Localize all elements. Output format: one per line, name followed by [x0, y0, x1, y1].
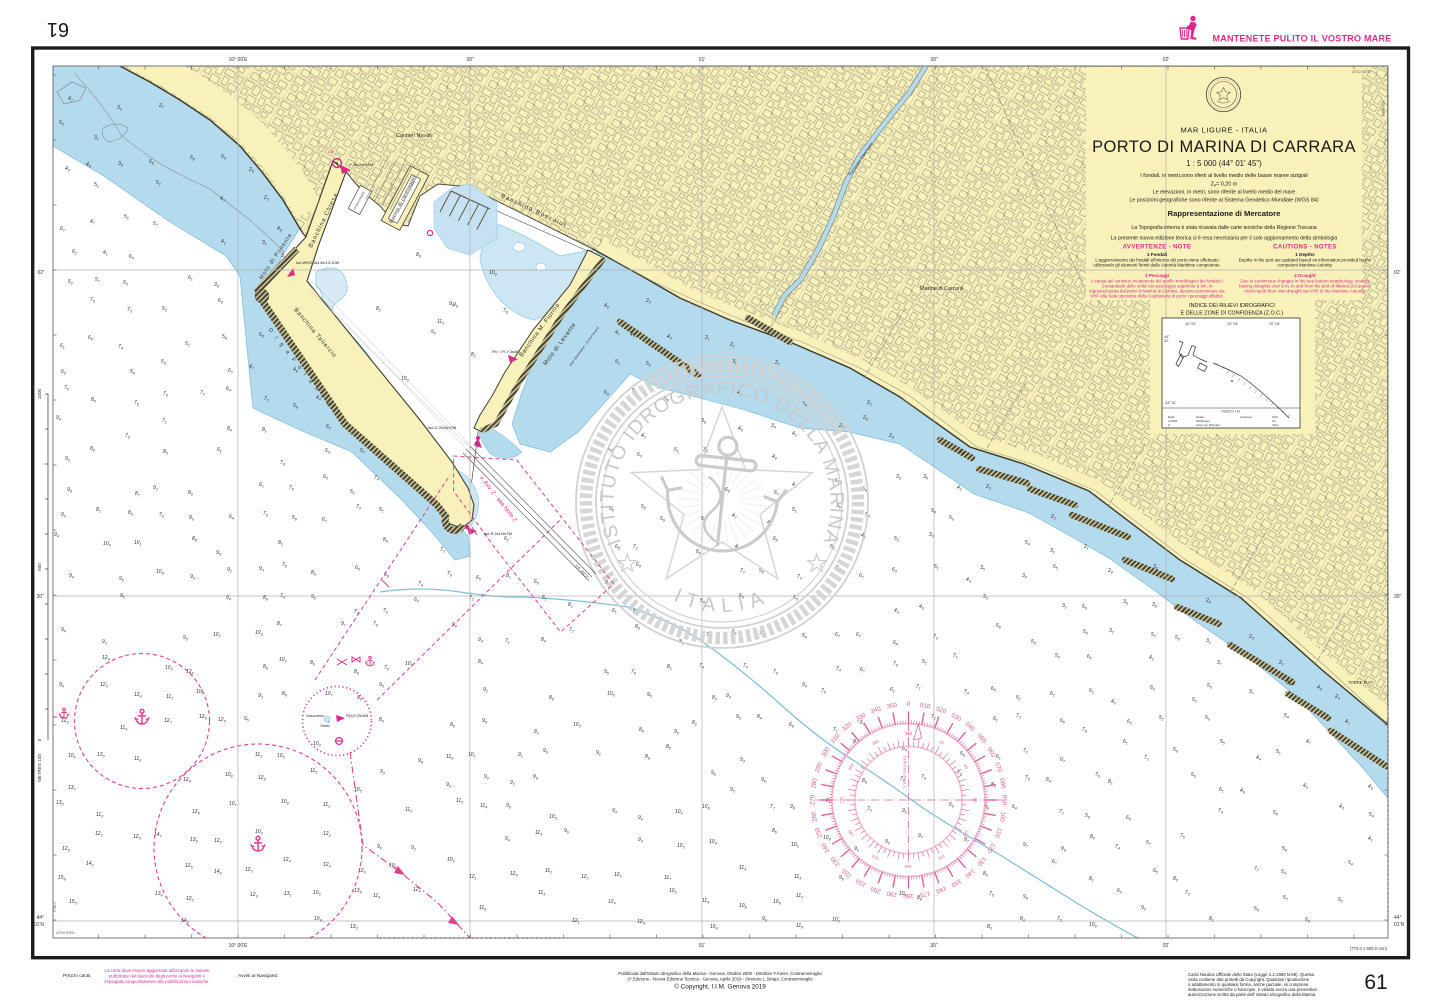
svg-text:Iso.G.2s10m7M: Iso.G.2s10m7M — [428, 425, 456, 430]
svg-text:1 Fondali: 1 Fondali — [1147, 252, 1167, 257]
svg-text:44°: 44° — [36, 915, 44, 921]
svg-text:Pubblicata dall'Istituto Idrog: Pubblicata dall'Istituto Idrografico del… — [618, 971, 822, 976]
svg-text:E DELLE ZONE DI CONFIDENZA (Z.: E DELLE ZONE DI CONFIDENZA (Z.O.C.) — [1181, 311, 1284, 317]
svg-text:30": 30" — [1394, 594, 1402, 600]
svg-text:9°56.0': 9°56.0' — [53, 901, 57, 912]
svg-text:10° 04': 10° 04' — [1269, 322, 1280, 326]
svg-text:61: 61 — [47, 18, 69, 40]
svg-text:RILIEVI I.I.M.: RILIEVI I.I.M. — [1222, 410, 1241, 414]
svg-text:VHF alla Sala operativa della: VHF alla Sala operativa della Capitaneri… — [1090, 294, 1223, 299]
svg-text:Iso.WRG.3s14m13-10M: Iso.WRG.3s14m13-10M — [296, 260, 339, 265]
svg-text:500: 500 — [37, 563, 42, 571]
svg-text:Iso.R.2s10m7M: Iso.R.2s10m7M — [484, 531, 512, 536]
svg-text:β: β — [1168, 423, 1170, 427]
svg-text:1 : 5 000 (44° 01' 45"): 1 : 5 000 (44° 01' 45") — [1186, 159, 1262, 168]
svg-text:02': 02' — [1164, 339, 1169, 343]
svg-text:180: 180 — [904, 864, 912, 869]
svg-text:180: 180 — [903, 892, 914, 899]
svg-text:Prezzo cat.B: Prezzo cat.B — [63, 973, 90, 979]
svg-text:44°: 44° — [1394, 915, 1402, 921]
svg-text:10° 00'E: 10° 00'E — [229, 57, 248, 63]
svg-text:44°02.507'N: 44°02.507'N — [1352, 70, 1371, 74]
svg-text:must report their own draught: must report their own draught via VHF to… — [1244, 289, 1365, 294]
svg-text:autorizzazione scritta da part: autorizzazione scritta da parte dell' Is… — [1188, 992, 1317, 997]
svg-text:METRES 100: METRES 100 — [37, 754, 42, 783]
svg-text:Area non Rilevata: Area non Rilevata — [1196, 423, 1220, 427]
svg-text:0: 0 — [37, 738, 42, 741]
svg-text:La carta deve essere aggiornat: La carta deve essere aggiornata utilizza… — [105, 968, 210, 973]
svg-text:1000: 1000 — [37, 388, 42, 399]
svg-text:01'N: 01'N — [1394, 922, 1405, 928]
svg-text:2 Pescaggi: 2 Pescaggi — [1145, 273, 1169, 278]
svg-text:10° 00'E: 10° 00'E — [229, 943, 248, 949]
svg-text:Hartness: Hartness — [1240, 415, 1253, 419]
svg-text:Fl.3s20m15M: Fl.3s20m15M — [349, 162, 373, 167]
svg-text:2ª Edizione - Nuova Edizione T: 2ª Edizione - Nuova Edizione Tecnica - G… — [628, 977, 814, 982]
svg-text:MAR LIGURE - ITALIA: MAR LIGURE - ITALIA — [1180, 126, 1267, 135]
svg-text:competent Maritime Autority.: competent Maritime Autority. — [1277, 263, 1332, 268]
svg-text:impiegata congiuntamente alle: impiegata congiuntamente alle pubblicazi… — [104, 979, 209, 984]
svg-text:Gasometro: Gasometro — [306, 714, 324, 718]
svg-text:Avvisi ai Naviganti:: Avvisi ai Naviganti: — [238, 973, 278, 979]
svg-text:61: 61 — [1364, 971, 1387, 994]
svg-text:0: 0 — [907, 701, 911, 708]
svg-text:RV = Fl.Y.3s4M: RV = Fl.Y.3s4M — [492, 349, 520, 354]
svg-text:30": 30" — [930, 943, 938, 949]
svg-text:02': 02' — [1163, 57, 1170, 63]
svg-text:Marina di Carrara: Marina di Carrara — [920, 286, 964, 292]
svg-text:pubblicate nel fascicolo degli: pubblicate nel fascicolo degli Avvisi ai… — [109, 974, 206, 979]
svg-text:© Copyright, I.I.M. Genova 201: © Copyright, I.I.M. Genova 2019 — [674, 983, 766, 991]
svg-text:2 Draught: 2 Draught — [1294, 273, 1316, 278]
svg-text:AB: AB — [328, 150, 334, 154]
svg-text:02': 02' — [37, 270, 44, 276]
svg-text:Obstn: Obstn — [320, 724, 330, 728]
svg-text:INDICE DEI RILIEVI IDROGRAFICI: INDICE DEI RILIEVI IDROGRAFICI — [1189, 303, 1275, 309]
svg-text:44°00.975'N: 44°00.975'N — [56, 931, 75, 935]
svg-text:PORTO DI MARINA DI CARRARA: PORTO DI MARINA DI CARRARA — [1092, 138, 1356, 156]
svg-text:30": 30" — [37, 594, 45, 600]
svg-text:Le posizioni geografiche sono: Le posizioni geografiche sono riferite a… — [1129, 198, 1319, 204]
svg-text:Le elevazioni, in metri, sono: Le elevazioni, in metri, sono riferite a… — [1153, 190, 1296, 196]
svg-text:Cantieri Navali: Cantieri Navali — [396, 133, 432, 139]
svg-text:1 Depths: 1 Depths — [1295, 252, 1315, 257]
svg-text:(770.0 x 500.0 mm): (770.0 x 500.0 mm) — [1350, 946, 1388, 951]
svg-text:01': 01' — [699, 943, 706, 949]
svg-text:CAUTIONS - NOTES: CAUTIONS - NOTES — [1273, 245, 1337, 251]
svg-text:AVVERTENZE - NOTE: AVVERTENZE - NOTE — [1123, 245, 1192, 251]
svg-text:01': 01' — [699, 57, 706, 63]
svg-text:Rappresentazione di Mercatore: Rappresentazione di Mercatore — [1168, 209, 1281, 218]
svg-text:utilizzando gli elementi forni: utilizzando gli elementi forniti dalle A… — [1093, 263, 1220, 268]
svg-text:TORRE FIAT: TORRE FIAT — [1348, 680, 1373, 685]
svg-text:30": 30" — [466, 57, 474, 63]
svg-text:La Topografia interna è stata: La Topografia interna è stata ricavata d… — [1131, 225, 1316, 231]
svg-text:-44° 01': -44° 01' — [1164, 401, 1177, 405]
svg-text:MANTENETE PULITO IL VOSTRO MAR: MANTENETE PULITO IL VOSTRO MARE — [1213, 34, 1392, 44]
svg-text:30": 30" — [930, 57, 938, 63]
svg-text:La presente nuova edizione teo: La presente nuova edizione teorica si è … — [1111, 236, 1338, 242]
svg-text:9°59.801'E: 9°59.801'E — [1381, 100, 1385, 117]
svg-text:I fondali, in metri,sono rifer: I fondali, in metri,sono riferti al live… — [1140, 173, 1307, 179]
svg-text:02': 02' — [1394, 270, 1401, 276]
svg-text:Fl(5)Y.20s3M: Fl(5)Y.20s3M — [346, 714, 368, 718]
svg-text:02': 02' — [1163, 943, 1170, 949]
svg-text:UNA: UNA — [1272, 423, 1278, 427]
svg-text:01'N: 01'N — [34, 922, 45, 928]
svg-text:10° 03': 10° 03' — [1227, 322, 1238, 326]
svg-text:10° 02': 10° 02' — [1185, 322, 1196, 326]
svg-text:2°15'W 2015 (8'E): 2°15'W 2015 (8'E) — [902, 755, 907, 788]
